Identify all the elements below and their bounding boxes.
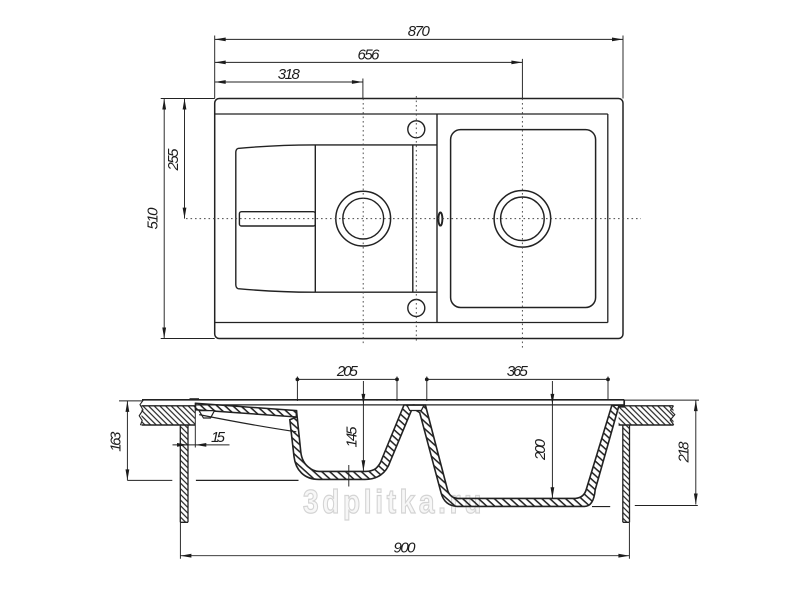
svg-text:510: 510 xyxy=(145,207,162,230)
svg-text:145: 145 xyxy=(344,426,361,448)
svg-text:218: 218 xyxy=(676,441,693,464)
svg-text:200: 200 xyxy=(532,438,549,461)
svg-text:870: 870 xyxy=(408,23,431,40)
svg-text:656: 656 xyxy=(358,47,381,64)
svg-text:205: 205 xyxy=(336,363,359,380)
svg-text:15: 15 xyxy=(211,429,226,446)
svg-text:318: 318 xyxy=(278,66,301,83)
svg-text:365: 365 xyxy=(507,363,529,380)
svg-text:163: 163 xyxy=(107,431,124,452)
svg-text:900: 900 xyxy=(394,540,417,557)
svg-text:255: 255 xyxy=(165,148,182,172)
